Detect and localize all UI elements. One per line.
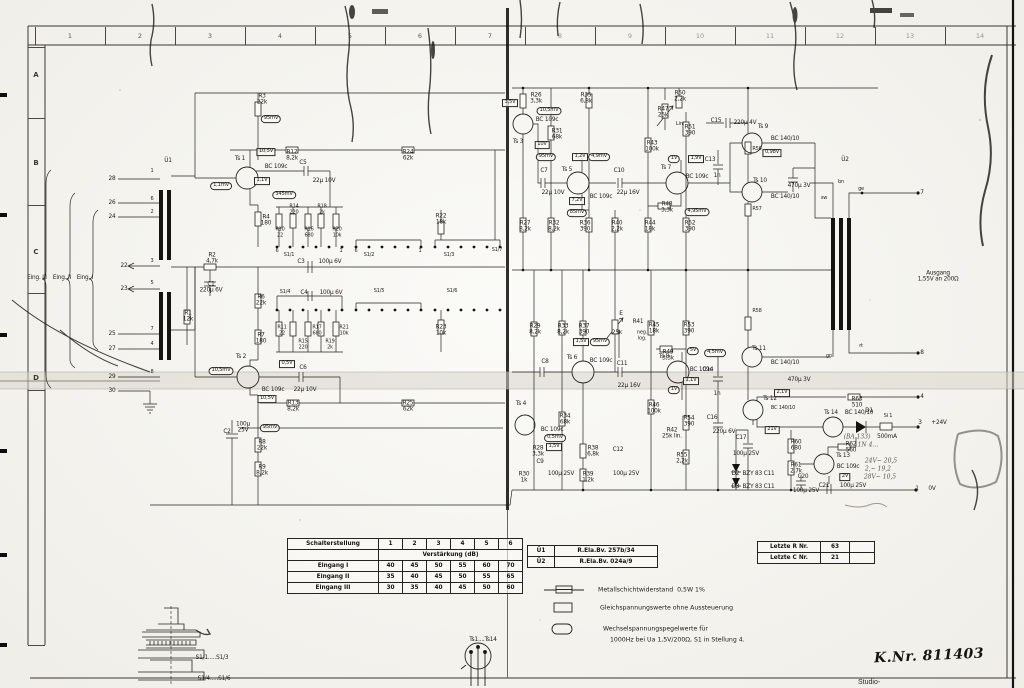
- table-cell: 45: [451, 583, 475, 594]
- component-label: R25 62k: [403, 401, 414, 414]
- component-label: 22μ 16V: [617, 190, 640, 196]
- component-label: Ü2: [841, 157, 849, 163]
- component-label: R41: [633, 319, 644, 325]
- table-cell: 40: [427, 583, 451, 594]
- dc-value-label: 10V: [535, 141, 550, 149]
- component-label: R36 390: [580, 221, 591, 234]
- dc-value-label: 7,2V: [569, 197, 585, 205]
- component-label: C7: [540, 168, 547, 174]
- component-label: BC 109c: [262, 387, 285, 393]
- component-label: C1 220μ 6V: [200, 282, 223, 295]
- table-cell: 55: [475, 572, 499, 583]
- component-label: BC 109c: [686, 174, 709, 180]
- component-label: 22μ 10V: [542, 190, 565, 196]
- component-label: rt: [859, 344, 863, 350]
- component-label: C12: [613, 447, 624, 453]
- component-label: Ts 1: [235, 156, 245, 162]
- table-row: Letzte C Nr.21: [758, 553, 875, 564]
- component-label: Eing. I: [77, 275, 94, 281]
- table-cell: 21: [821, 553, 850, 564]
- table-cell: 40: [403, 572, 427, 583]
- ac-value-label: 95mV: [590, 338, 610, 346]
- ac-value-label: 1V: [668, 155, 680, 163]
- table-cell: R.Ela.Bv. 257b/34: [555, 546, 658, 557]
- dc-value-label: 10,5V: [256, 148, 275, 156]
- component-label: S1/2: [364, 253, 374, 259]
- component-label: R39 1,2k: [582, 472, 594, 485]
- component-label: R21 10k: [339, 325, 348, 336]
- table-cell: 40: [379, 561, 403, 572]
- component-label: R32 8,2k: [548, 221, 560, 234]
- component-label: R1 12k: [183, 311, 193, 324]
- component-label: C10: [614, 168, 625, 174]
- component-label: R18 2k: [317, 204, 326, 215]
- component-label: R29 8,2k: [529, 324, 541, 337]
- component-label: BC 140/10: [771, 360, 799, 366]
- component-label: R50 2,2k: [674, 91, 686, 104]
- component-label: 220μ 4V: [734, 120, 757, 126]
- ac-value-label: 4,9mV: [588, 153, 610, 161]
- table-cell: 30: [379, 583, 403, 594]
- table-cell: 60: [475, 561, 499, 572]
- component-label: +24V: [931, 420, 946, 426]
- table-row: Schalterstellung123456: [288, 539, 523, 550]
- component-label: gn: [826, 354, 832, 360]
- table-row: Eingang III303540455060: [288, 583, 523, 594]
- component-label: R56: [752, 147, 761, 153]
- table-cell: 35: [403, 583, 427, 594]
- component-label: R54 390: [684, 416, 695, 429]
- table-cell: [850, 553, 875, 564]
- component-label: BC 109c: [265, 164, 288, 170]
- component-label: ge: [858, 187, 864, 193]
- component-label: 100μ 6V: [319, 259, 342, 265]
- table-row: Ü2R.Ela.Bv. 024a/9: [528, 557, 658, 568]
- dc-value-label: 21V: [765, 426, 780, 434]
- component-label: 100μ 25V: [548, 471, 574, 477]
- component-label: 22μ 10V: [313, 178, 336, 184]
- component-label: S1/4: [280, 290, 290, 296]
- component-label: C2: [223, 429, 230, 435]
- ac-value-label: 95mV: [260, 424, 280, 432]
- table-cell: [850, 542, 875, 553]
- dc-value-label: 1,1V: [254, 177, 270, 185]
- bottom-partial-title: Studio-: [858, 679, 880, 686]
- ac-value-label: 85mV: [567, 209, 587, 217]
- component-label: R37 390: [579, 324, 590, 337]
- table-cell: Eingang III: [288, 583, 379, 594]
- component-label: Ts 3: [513, 139, 523, 145]
- component-label: R57: [752, 207, 761, 213]
- component-label: Ts 6: [567, 355, 577, 361]
- component-label: 28: [109, 176, 116, 182]
- transformer-table: Ü1R.Ela.Bv. 257b/34Ü2R.Ela.Bv. 024a/9: [527, 545, 658, 568]
- component-label: C13: [705, 157, 716, 163]
- component-label: 6: [276, 249, 279, 255]
- component-label: R63 510: [852, 397, 863, 410]
- component-label: R51 390: [685, 125, 696, 138]
- component-label: 25k: [612, 330, 622, 336]
- table-cell: 35: [379, 572, 403, 583]
- component-label: R7 180: [256, 333, 266, 346]
- component-label: C14: [703, 367, 714, 373]
- component-label: R27 8,2k: [519, 221, 531, 234]
- component-label: Ts 8: [659, 354, 669, 360]
- component-label: neg. log.: [637, 330, 647, 341]
- table-cell: 65: [499, 572, 523, 583]
- component-label: Ts 10: [753, 178, 767, 184]
- component-label: S1/3: [444, 253, 454, 259]
- table-cell: Schalterstellung: [288, 539, 379, 550]
- handwritten-note: 1N 4…: [858, 443, 879, 450]
- component-label: R17 680: [312, 325, 321, 336]
- component-label: 2: [151, 210, 154, 216]
- component-label: Ts 4: [516, 401, 526, 407]
- component-label: 24: [109, 214, 116, 220]
- table-row: Ü1R.Ela.Bv. 257b/34: [528, 546, 658, 557]
- table-row: Eingang I404550556070: [288, 561, 523, 572]
- ac-value-label: 0,5mV: [544, 434, 566, 442]
- table-row: Verstärkung (dB): [288, 550, 523, 561]
- dc-value-label: 1,5V: [573, 338, 589, 346]
- component-label: 1n: [714, 391, 721, 397]
- table-cell: 4: [451, 539, 475, 550]
- component-label: 500mA: [877, 434, 897, 440]
- ac-value-label: 95mV: [536, 153, 556, 161]
- gain-table: Schalterstellung123456Verstärkung (dB)Ei…: [287, 538, 523, 594]
- component-label: Ts1....Ts14: [469, 637, 496, 643]
- component-label: Si 1: [884, 414, 893, 420]
- table-cell: Verstärkung (dB): [379, 550, 523, 561]
- component-label: R15 220: [298, 339, 307, 350]
- handwritten-note: (BA 133): [844, 435, 871, 442]
- component-label: 22μ 16V: [618, 383, 641, 389]
- component-label: C8: [541, 359, 548, 365]
- component-label: Eing. III: [27, 275, 47, 281]
- component-label: D2 BZY 83 C11: [731, 471, 774, 477]
- component-label: 23: [121, 286, 128, 292]
- component-label: R42 25k lin.: [662, 428, 682, 441]
- component-label: R22 18k: [436, 214, 447, 227]
- component-label: S1/5: [374, 289, 384, 295]
- last-numbers-table: Letzte R Nr.63Letzte C Nr.21: [757, 541, 875, 564]
- component-label: 1n: [714, 173, 721, 179]
- component-label: R44 18k: [645, 221, 656, 234]
- component-label: D3 BZY 83 C11: [731, 484, 774, 490]
- dc-value-label: 2V: [839, 473, 850, 481]
- table-cell: 50: [475, 583, 499, 594]
- ac-value-label: 345mV: [272, 191, 296, 199]
- component-label: R11 22: [277, 325, 286, 336]
- component-label: C9: [536, 459, 543, 465]
- table-cell: [288, 550, 379, 561]
- component-label: C3: [297, 259, 304, 265]
- component-label: R52 390: [685, 221, 696, 234]
- component-label: Lin.: [676, 122, 684, 128]
- table-cell: 2: [403, 539, 427, 550]
- component-label: R30 1k: [519, 472, 530, 485]
- component-label: 220μ 6V: [713, 429, 736, 435]
- dc-value-label: 2,1V: [774, 389, 790, 397]
- dc-value-label: 0,5V: [279, 360, 295, 368]
- component-label: 6: [355, 249, 358, 255]
- component-label: R24 62k: [403, 150, 414, 163]
- component-label: R9 8,2k: [256, 465, 268, 478]
- component-label: 3: [918, 420, 922, 426]
- component-label: C21: [819, 483, 830, 489]
- table-cell: Eingang II: [288, 572, 379, 583]
- component-label: E: [619, 311, 622, 317]
- component-label: R23 10k: [436, 325, 447, 338]
- component-label: BC 109c: [536, 117, 559, 123]
- ac-value-label: 4,95mV: [685, 208, 710, 216]
- component-label: Ts 11: [752, 346, 766, 352]
- dc-value-label: 0,98V: [762, 149, 781, 157]
- legend-ac-label-2: 1000Hz bei Ua 1,5V/200Ω, S1 in Stellung …: [610, 637, 745, 644]
- table-cell: Eingang I: [288, 561, 379, 572]
- component-label: 7: [920, 190, 924, 196]
- table-row: Eingang II354045505565: [288, 572, 523, 583]
- component-label: R45 18k: [649, 323, 660, 336]
- component-label: R60 680: [791, 440, 802, 453]
- schematic-scan-page: 1234567891011121314ABCD Ü128262422232527…: [0, 0, 1024, 688]
- component-label: 26: [109, 200, 116, 206]
- component-label: Ts 14: [824, 410, 838, 416]
- component-label: 3: [151, 259, 154, 265]
- ac-value-label: 5V: [687, 347, 699, 355]
- handwritten-note: 2,~ 19,2: [865, 467, 891, 474]
- handwritten-note: 28V~ 10,5: [864, 475, 896, 482]
- component-label: 100μ 6V: [320, 290, 343, 296]
- component-label: Ausgang 1,55V an 200Ω: [918, 271, 959, 284]
- component-label: Ts 7: [661, 165, 671, 171]
- component-label: 8: [920, 350, 924, 356]
- component-label: C17: [736, 435, 747, 441]
- component-label: R35 6,8k: [580, 93, 592, 106]
- legend-dc-label: Gleichspannungswerte ohne Aussteuerung: [600, 605, 733, 612]
- component-label: sw: [821, 196, 827, 202]
- component-label: R58: [752, 309, 761, 315]
- component-label: C11: [617, 361, 628, 367]
- table-cell: 70: [499, 561, 523, 572]
- table-cell: 45: [427, 572, 451, 583]
- table-cell: 55: [451, 561, 475, 572]
- component-label: 1: [419, 249, 422, 255]
- ac-value-label: 10,5mV: [537, 107, 562, 115]
- component-label: 22: [121, 263, 128, 269]
- table-row: Letzte R Nr.63: [758, 542, 875, 553]
- component-label: R40 2,2k: [611, 221, 623, 234]
- component-label: BC 109c: [541, 427, 564, 433]
- component-label: BC 140/10: [771, 194, 799, 200]
- dc-value-label: 1,5V: [546, 443, 562, 451]
- component-label: 100μ 25V: [840, 483, 866, 489]
- component-label: BC 109c: [590, 194, 613, 200]
- component-label: R4 180: [261, 215, 271, 228]
- component-label: R28 3,3k: [532, 446, 544, 459]
- component-label: S1/7: [492, 248, 502, 254]
- component-label: 4: [920, 394, 924, 400]
- component-label: Ts 9: [758, 124, 768, 130]
- component-label: R2 4,7k: [206, 253, 218, 266]
- ac-value-label: 1V: [668, 386, 680, 394]
- component-label: C5: [299, 160, 306, 166]
- component-label: R62 560: [846, 442, 857, 455]
- component-label: C15: [711, 118, 722, 124]
- component-label: 27: [109, 346, 116, 352]
- dc-value-label: 1,1V: [683, 377, 699, 385]
- table-cell: R.Ela.Bv. 024a/9: [555, 557, 658, 568]
- dc-value-label: 1,9V: [688, 155, 704, 163]
- component-label: BC 140/10: [771, 406, 795, 412]
- ac-value-label: 4,5mV: [704, 349, 726, 357]
- component-label: S1/6: [447, 289, 457, 295]
- component-label: Ts 2: [236, 354, 246, 360]
- table-cell: 63: [821, 542, 850, 553]
- legend-resistor-label: Metallschichtwiderstand 0,5W 1%: [598, 587, 705, 594]
- component-label: 6: [151, 197, 154, 203]
- component-label: R19 2k: [325, 339, 334, 350]
- dc-value-label: 10,5V: [257, 395, 276, 403]
- table-cell: 3: [427, 539, 451, 550]
- component-label: R33 8,2k: [557, 324, 569, 337]
- component-label: R34 68k: [560, 414, 571, 427]
- component-label: 1: [915, 486, 919, 492]
- component-label: 4: [151, 342, 154, 348]
- component-label: 470μ 3V: [788, 183, 811, 189]
- table-cell: Ü2: [528, 557, 555, 568]
- component-label: 100μ 25V: [793, 488, 819, 494]
- component-label: 0V: [928, 486, 935, 492]
- component-label: R8 22k: [257, 440, 267, 453]
- component-label: R53 390: [684, 323, 695, 336]
- component-label: 100μ 25V: [613, 471, 639, 477]
- component-label: R46 100k: [647, 403, 661, 416]
- table-cell: 5: [475, 539, 499, 550]
- table-cell: 60: [499, 583, 523, 594]
- component-label: 30: [109, 388, 116, 394]
- component-label: 29: [109, 374, 116, 380]
- component-label: 470μ 3V: [788, 377, 811, 383]
- component-label: R16 680: [304, 227, 313, 238]
- component-label: 8: [151, 370, 154, 376]
- component-label: BC 109c: [590, 358, 613, 364]
- dc-value-label: 1,2V: [572, 153, 588, 161]
- component-label: R43 100k: [645, 141, 659, 154]
- table-cell: 45: [403, 561, 427, 572]
- component-label: R10 22: [275, 227, 284, 238]
- component-label: R6 22k: [256, 295, 266, 308]
- component-label: 1: [340, 249, 343, 255]
- component-label: S1/1.....S1/3: [196, 655, 229, 661]
- component-label: R12 8,2k: [286, 150, 298, 163]
- table-cell: 50: [427, 561, 451, 572]
- ac-value-label: 10,5mV: [209, 367, 234, 375]
- component-label: R26 3,3k: [530, 93, 542, 106]
- ac-value-label: 1,1mV: [210, 182, 232, 190]
- component-label: R38 6,8k: [587, 446, 599, 459]
- component-label: 25: [109, 331, 116, 337]
- component-label: R14 220: [289, 204, 298, 215]
- table-cell: 6: [499, 539, 523, 550]
- component-label: C16: [707, 415, 718, 421]
- component-label: C4: [300, 290, 307, 296]
- legend-ac-label-1: Wechselspannungspegelwerte für: [603, 626, 708, 633]
- component-label: bn: [838, 180, 844, 186]
- component-label: Eing. II: [53, 275, 71, 281]
- table-cell: Letzte R Nr.: [758, 542, 821, 553]
- component-label: R48 3,3k: [661, 202, 673, 215]
- component-label: S1/4.....S1/6: [198, 676, 231, 682]
- component-label: S1/1: [284, 253, 294, 259]
- component-label: C20: [798, 474, 809, 480]
- table-cell: Ü1: [528, 546, 555, 557]
- component-label: Ts 5: [562, 167, 572, 173]
- component-label: BC 140/10: [771, 136, 799, 142]
- component-label: R20 10k: [332, 227, 341, 238]
- component-label: 7: [151, 327, 154, 333]
- component-label: Ü1: [164, 158, 172, 164]
- component-label: D1: [865, 408, 873, 414]
- handwritten-note: 24V~ 20,5: [865, 459, 897, 466]
- component-label: R3 22k: [257, 94, 267, 107]
- table-cell: Letzte C Nr.: [758, 553, 821, 564]
- component-label: R31 68k: [552, 129, 563, 142]
- table-cell: 50: [451, 572, 475, 583]
- component-label: 100μ 25V: [236, 422, 250, 435]
- component-label: 22μ 10V: [294, 387, 317, 393]
- component-label: 5: [151, 281, 154, 287]
- table-cell: 1: [379, 539, 403, 550]
- component-label: C6: [299, 365, 306, 371]
- component-label: 100μ 25V: [733, 451, 759, 457]
- component-label: BC 109c: [837, 464, 860, 470]
- component-label: 1: [151, 169, 154, 175]
- dc-value-label: 3,5V: [502, 99, 518, 107]
- component-label: R47 25k: [658, 107, 669, 120]
- component-label: R55 2,2k: [676, 453, 688, 466]
- ac-value-label: 95mV: [261, 115, 281, 123]
- component-label: R13 8,2k: [287, 401, 299, 414]
